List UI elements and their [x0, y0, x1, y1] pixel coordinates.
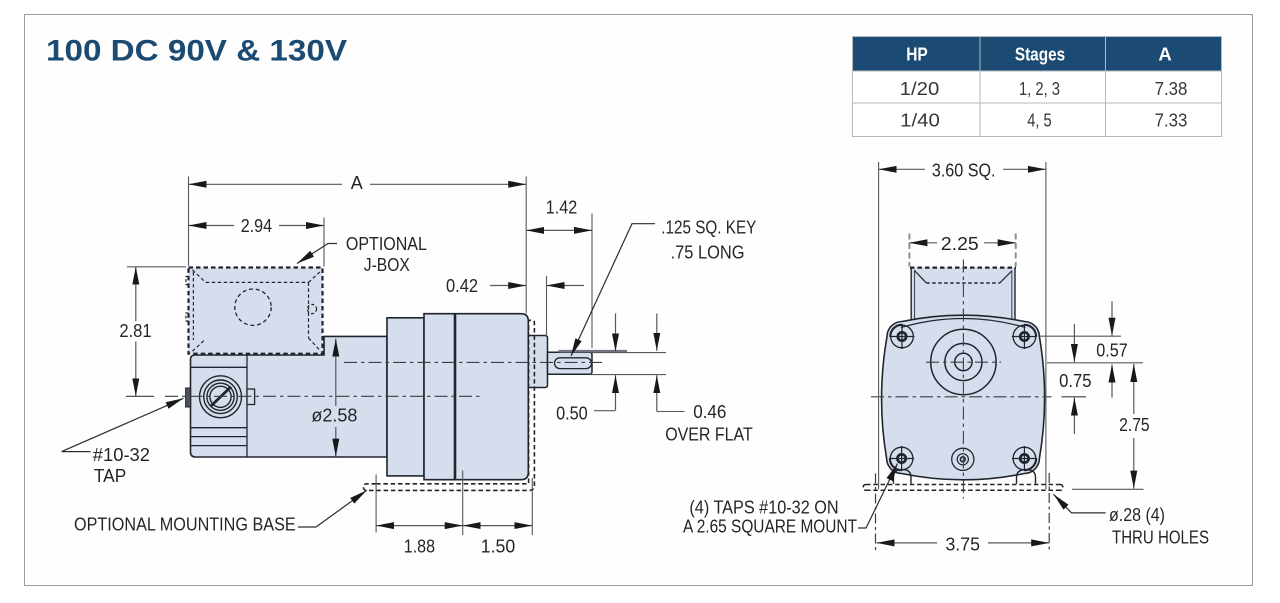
- svg-text:#10-32: #10-32: [93, 445, 150, 465]
- svg-text:0.42: 0.42: [446, 276, 478, 296]
- svg-text:2.75: 2.75: [1119, 415, 1150, 435]
- svg-text:OPTIONAL MOUNTING BASE: OPTIONAL MOUNTING BASE: [74, 515, 296, 535]
- svg-text:7.33: 7.33: [1155, 110, 1188, 131]
- svg-text:1.50: 1.50: [481, 537, 516, 557]
- svg-text:2.81: 2.81: [119, 321, 151, 341]
- svg-text:0.57: 0.57: [1096, 341, 1128, 361]
- svg-text:1/40: 1/40: [900, 110, 940, 131]
- svg-text:0.46: 0.46: [693, 402, 726, 422]
- svg-text:A 2.65 SQUARE MOUNT: A 2.65 SQUARE MOUNT: [683, 516, 857, 536]
- svg-text:7.38: 7.38: [1155, 78, 1188, 99]
- svg-text:ø.28 (4): ø.28 (4): [1109, 505, 1165, 525]
- svg-text:3.60 SQ.: 3.60 SQ.: [932, 161, 996, 181]
- svg-text:1.88: 1.88: [404, 537, 435, 557]
- svg-text:4, 5: 4, 5: [1027, 110, 1051, 131]
- svg-text:0.75: 0.75: [1059, 371, 1091, 391]
- svg-text:TAP: TAP: [94, 466, 126, 486]
- svg-text:100 DC 90V & 130V: 100 DC 90V & 130V: [46, 34, 347, 67]
- svg-text:3.75: 3.75: [945, 535, 980, 555]
- svg-text:.75 LONG: .75 LONG: [671, 243, 745, 263]
- svg-text:1/20: 1/20: [900, 78, 940, 99]
- svg-text:OVER FLAT: OVER FLAT: [665, 424, 753, 444]
- svg-text:1.42: 1.42: [546, 197, 577, 217]
- svg-text:0.50: 0.50: [556, 404, 588, 424]
- svg-text:2.25: 2.25: [941, 234, 979, 254]
- svg-text:THRU HOLES: THRU HOLES: [1112, 528, 1209, 548]
- svg-text:OPTIONAL: OPTIONAL: [346, 234, 427, 254]
- svg-text:2.94: 2.94: [241, 216, 272, 236]
- svg-text:(4) TAPS #10-32 ON: (4) TAPS #10-32 ON: [689, 497, 838, 517]
- svg-text:1, 2, 3: 1, 2, 3: [1019, 78, 1060, 99]
- svg-text:J-BOX: J-BOX: [364, 255, 410, 275]
- svg-text:A: A: [1158, 44, 1171, 65]
- svg-text:Stages: Stages: [1015, 44, 1065, 65]
- svg-text:A: A: [351, 173, 363, 193]
- svg-text:.125 SQ. KEY: .125 SQ. KEY: [661, 218, 756, 238]
- svg-text:ø2.58: ø2.58: [311, 405, 357, 425]
- svg-text:HP: HP: [906, 44, 928, 65]
